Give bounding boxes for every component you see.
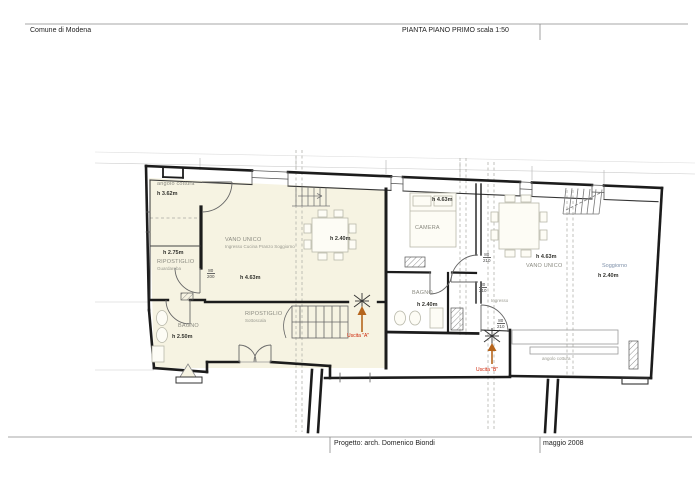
exit-b-arrow [488, 343, 497, 364]
date-label: maggio 2008 [543, 440, 583, 447]
dining-table-right [491, 195, 547, 257]
dim-height: 210 [483, 258, 491, 263]
drawing-title: PIANTA PIANO PRIMO scala 1:50 [402, 27, 509, 34]
height-label-463-left: h 4.63m [240, 275, 260, 281]
door-dim-80-200: 80 200 [207, 268, 215, 279]
height-label-camera: h 4.63m [432, 197, 452, 203]
height-label-soggiorno: h 2.40m [598, 273, 618, 279]
dim-height: 210 [497, 324, 505, 329]
height-label-angolo-left: h 3.62m [157, 191, 177, 197]
door-dim-uscita-b: 80 210 [497, 318, 505, 329]
exit-a-label: Uscita "A" [347, 333, 369, 339]
municipality-label: Comune di Modena [30, 27, 91, 34]
room-label-camera: CAMERA [415, 225, 440, 231]
dim-height: 200 [207, 274, 215, 279]
height-label-vano-right: h 4.63m [536, 254, 556, 260]
bagno-middle-fixtures [395, 308, 444, 328]
height-label-ripostiglio1: h 2.75m [163, 250, 183, 256]
room-sublabel-ripostiglio2: Sottoscala [245, 318, 266, 323]
height-label-vano-left: h 2.40m [330, 236, 350, 242]
door-dim-ingresso: 80 210 [479, 282, 487, 293]
room-label-bagno-left: BAGNO [178, 323, 199, 329]
room-label-ingresso-right: Ingresso [491, 298, 508, 303]
height-label-bagno-left: h 2.50m [172, 334, 192, 340]
floor-plan-svg [0, 0, 700, 500]
room-label-bagno-middle: BAGNO [412, 290, 433, 296]
drawing-sheet: Comune di Modena PIANTA PIANO PRIMO scal… [0, 0, 700, 500]
door-camera [451, 255, 478, 282]
room-label-ripostiglio1: RIPOSTIGLIO [157, 259, 194, 265]
room-label-soggiorno: Soggiorno [602, 263, 627, 269]
room-sublabel-ripostiglio1: Guardaroba [157, 266, 181, 271]
door-dim-camera: 80 210 [483, 252, 491, 263]
exit-b-label: Uscita "B" [476, 367, 498, 373]
dim-height: 210 [479, 288, 487, 293]
room-label-vano-unico-left: VANO UNICO [225, 237, 261, 243]
room-label-ripostiglio2: RIPOSTIGLIO [245, 311, 282, 317]
room-label-angolo-cottura-left: angolo cottura [157, 181, 195, 187]
height-label-bagno-middle: h 2.40m [417, 302, 437, 308]
kitchen-counter-right [512, 330, 618, 354]
room-label-vano-unico-right: VANO UNICO [526, 263, 562, 269]
room-label-angolo-cottura-right: angolo cottura [542, 356, 571, 361]
room-sublabel-vano-unico-left: Ingresso Cucina Pranzo Soggiorno [225, 244, 295, 249]
project-credit: Progetto: arch. Domenico Biondi [334, 440, 435, 447]
